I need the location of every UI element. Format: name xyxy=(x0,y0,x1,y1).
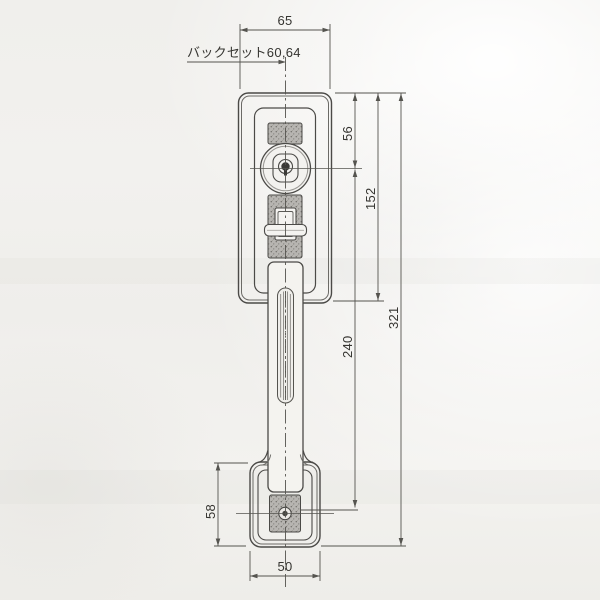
dim-50: 50 xyxy=(250,551,320,581)
arrowhead xyxy=(353,161,358,169)
grip-collar-right xyxy=(303,451,313,463)
dim-56-label: 56 xyxy=(340,126,355,141)
arrowhead xyxy=(250,574,258,579)
arrowhead xyxy=(353,94,358,102)
handle-lock-technical-drawing: 65 バックセット60,64 56 xyxy=(0,0,600,600)
dim-240-label: 240 xyxy=(340,335,355,358)
dim-50-label: 50 xyxy=(277,559,292,574)
arrowhead xyxy=(399,538,404,546)
arrowhead xyxy=(313,574,321,579)
dim-152-label: 152 xyxy=(363,187,378,210)
arrowhead xyxy=(216,463,221,471)
arrowhead xyxy=(323,28,331,33)
dim-58: 58 xyxy=(203,463,248,546)
dim-321: 321 xyxy=(386,94,403,546)
dim-58-label: 58 xyxy=(203,504,218,519)
arrowhead xyxy=(216,539,221,547)
arrowhead xyxy=(240,28,248,33)
dim-56: 56 xyxy=(340,94,357,169)
dim-321-label: 321 xyxy=(386,306,401,329)
arrowhead xyxy=(353,170,358,178)
arrowhead xyxy=(376,94,381,102)
dim-152: 152 xyxy=(363,94,380,301)
backset-label: バックセット60,64 xyxy=(187,45,301,60)
arrowhead xyxy=(279,60,287,64)
arrowhead xyxy=(353,500,358,508)
upper-hatched-insert xyxy=(268,123,302,144)
backset-annotation: バックセット60,64 xyxy=(187,45,301,64)
scanned-drawing-page: 65 バックセット60,64 56 xyxy=(0,0,600,600)
grip-collar-left xyxy=(258,451,268,463)
arrowhead xyxy=(399,94,404,102)
arrowhead xyxy=(376,293,381,301)
dim-240: 240 xyxy=(340,170,357,508)
dim-65-label: 65 xyxy=(277,13,292,28)
